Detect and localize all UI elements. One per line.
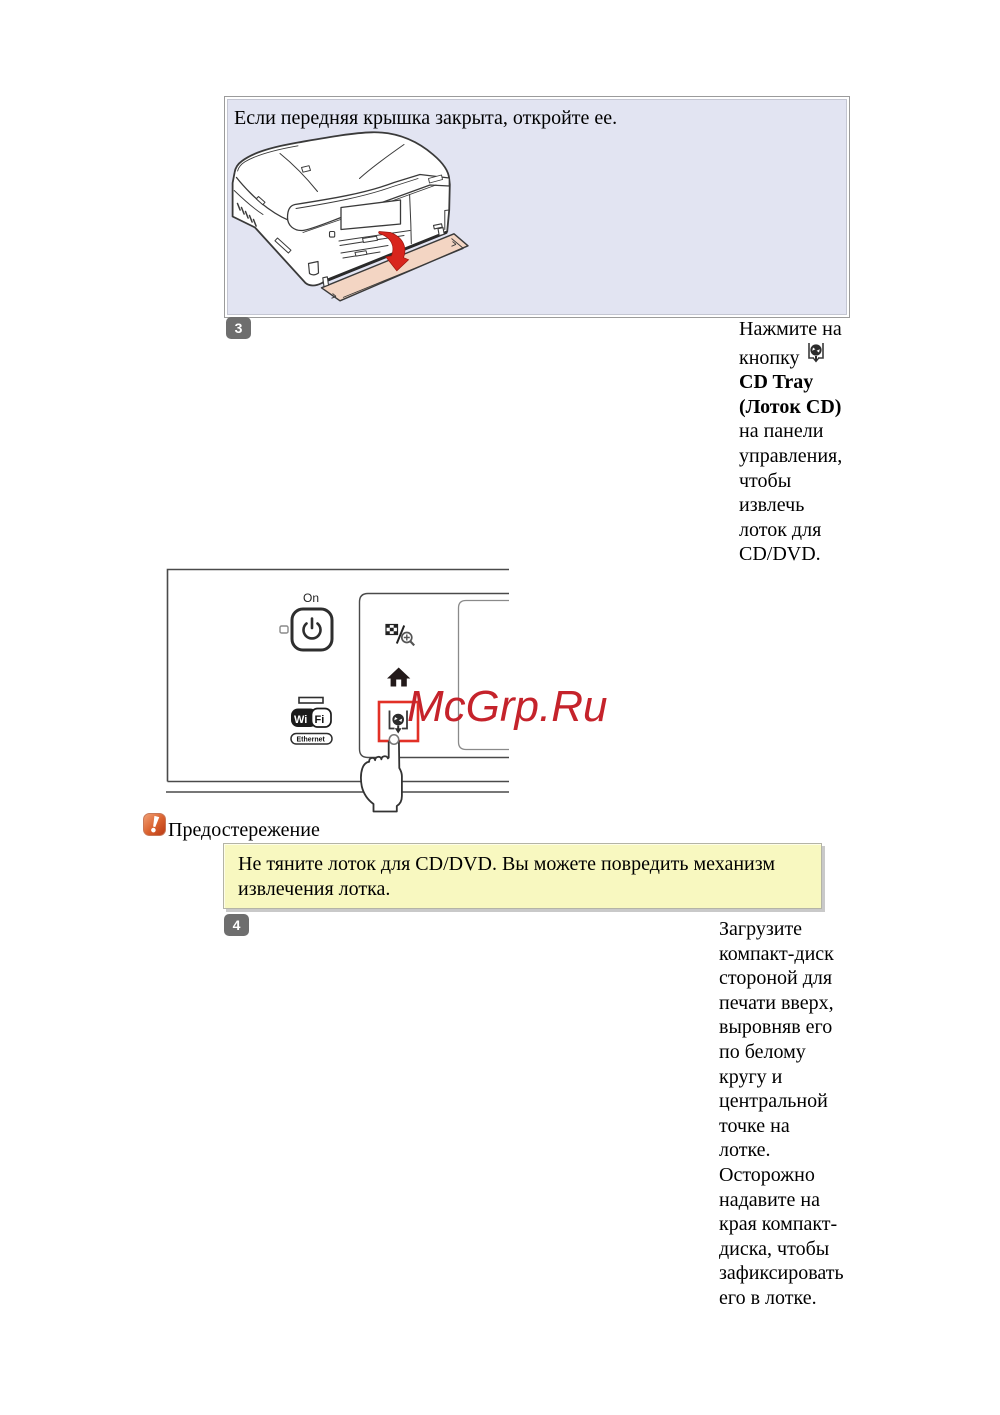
svg-text:Fi: Fi [315,714,325,726]
svg-text:Ethernet: Ethernet [297,737,326,744]
svg-text:On: On [303,591,319,605]
svg-text:Wi: Wi [294,714,307,726]
